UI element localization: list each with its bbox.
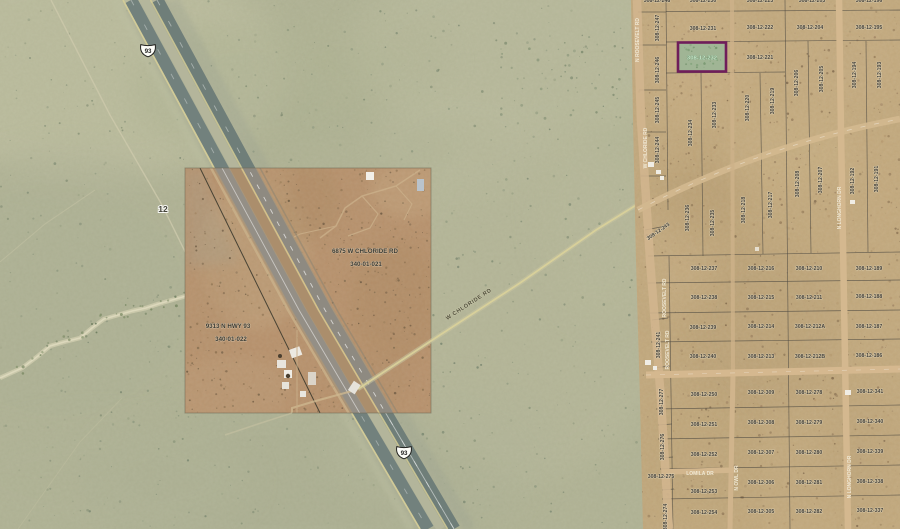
svg-text:308-12-276: 308-12-276 [660, 434, 666, 461]
svg-text:308-12-309: 308-12-309 [748, 390, 775, 396]
svg-text:ROOSEVELT RD: ROOSEVELT RD [665, 330, 671, 369]
svg-text:308-12-338: 308-12-338 [857, 479, 884, 485]
svg-text:308-12-253: 308-12-253 [691, 489, 718, 495]
svg-text:308-12-212B: 308-12-212B [795, 354, 826, 360]
svg-text:9313 N HWY 93: 9313 N HWY 93 [206, 323, 251, 330]
svg-text:308-12-223: 308-12-223 [747, 0, 774, 4]
svg-text:308-12-236: 308-12-236 [685, 205, 691, 232]
svg-text:308-12-189: 308-12-189 [856, 266, 883, 272]
svg-text:308-12-186: 308-12-186 [856, 353, 883, 359]
svg-text:308-12-212A: 308-12-212A [795, 324, 826, 330]
svg-text:308-12-210: 308-12-210 [796, 266, 823, 272]
svg-text:308-12-305: 308-12-305 [748, 509, 775, 515]
svg-text:308-12-237: 308-12-237 [691, 266, 718, 272]
svg-text:308-12-231: 308-12-231 [690, 26, 717, 32]
svg-text:308-12-341: 308-12-341 [857, 389, 884, 395]
svg-text:340-01-022: 340-01-022 [215, 336, 247, 343]
svg-text:308-12-238: 308-12-238 [691, 295, 718, 301]
svg-text:308-12-191: 308-12-191 [874, 166, 880, 193]
svg-text:LOMILA DR: LOMILA DR [686, 471, 714, 477]
svg-text:N LONGHORN DR: N LONGHORN DR [837, 186, 843, 229]
svg-text:ROOSEVELT RD: ROOSEVELT RD [662, 278, 668, 317]
svg-text:308-12-247: 308-12-247 [655, 15, 661, 42]
svg-text:308-12-250: 308-12-250 [691, 392, 718, 398]
svg-text:308-12-221: 308-12-221 [747, 55, 774, 61]
svg-text:308-12-281: 308-12-281 [796, 480, 823, 486]
svg-text:308-12-208: 308-12-208 [795, 171, 801, 198]
svg-text:308-12-277: 308-12-277 [659, 389, 665, 416]
svg-text:93: 93 [401, 450, 408, 457]
svg-text:308-12-215: 308-12-215 [748, 295, 775, 301]
svg-text:308-12-239: 308-12-239 [690, 325, 717, 331]
svg-text:308-12-252: 308-12-252 [691, 452, 718, 458]
svg-text:308-12-196: 308-12-196 [856, 0, 883, 4]
svg-text:308-12-220: 308-12-220 [745, 95, 751, 122]
svg-text:308-12-216: 308-12-216 [748, 266, 775, 272]
svg-text:308-12-275: 308-12-275 [648, 474, 675, 480]
svg-text:308-12-207: 308-12-207 [818, 167, 824, 194]
svg-text:308-12-211: 308-12-211 [796, 295, 822, 301]
svg-text:308-12-246: 308-12-246 [655, 57, 661, 84]
svg-text:308-12-194: 308-12-194 [852, 62, 858, 89]
svg-text:308-12-222: 308-12-222 [747, 25, 774, 31]
svg-text:308-12-251: 308-12-251 [691, 422, 718, 428]
svg-text:308-12-278: 308-12-278 [796, 390, 823, 396]
svg-text:308-12-240: 308-12-240 [690, 354, 717, 360]
svg-text:308-12-241: 308-12-241 [656, 332, 662, 359]
svg-text:308-12-193: 308-12-193 [877, 62, 883, 89]
svg-text:308-12-218: 308-12-218 [741, 197, 747, 224]
svg-text:308-12-280: 308-12-280 [796, 450, 823, 456]
svg-text:308-12-244: 308-12-244 [655, 137, 661, 164]
svg-text:308-12-307: 308-12-307 [748, 450, 775, 456]
svg-text:308-12-235: 308-12-235 [710, 210, 716, 237]
svg-text:308-12-340: 308-12-340 [857, 419, 884, 425]
svg-text:N LONGHORN DR: N LONGHORN DR [847, 455, 853, 498]
svg-text:308-12-248: 308-12-248 [644, 0, 671, 4]
svg-text:308-12-217: 308-12-217 [768, 192, 774, 219]
svg-text:W CHLORIDE RD: W CHLORIDE RD [643, 127, 649, 168]
svg-text:308-12-219: 308-12-219 [770, 88, 776, 115]
svg-text:308-12-213: 308-12-213 [748, 354, 775, 360]
svg-text:308-12-214: 308-12-214 [748, 324, 775, 330]
svg-text:308-12-282: 308-12-282 [796, 509, 823, 515]
svg-text:12: 12 [158, 204, 168, 214]
svg-text:308-12-232: 308-12-232 [687, 56, 718, 62]
svg-text:308-12-204: 308-12-204 [797, 25, 824, 31]
svg-text:93: 93 [145, 48, 152, 55]
svg-text:308-12-254: 308-12-254 [691, 510, 718, 516]
svg-text:308-12-206: 308-12-206 [794, 70, 800, 97]
svg-text:308-12-245: 308-12-245 [655, 97, 661, 124]
svg-text:308-12-279: 308-12-279 [796, 420, 823, 426]
svg-text:308-12-192: 308-12-192 [850, 168, 856, 195]
svg-text:308-12-339: 308-12-339 [857, 449, 884, 455]
svg-text:308-12-187: 308-12-187 [856, 324, 883, 330]
svg-text:308-12-234: 308-12-234 [688, 120, 694, 147]
svg-text:340-01-021: 340-01-021 [350, 261, 382, 268]
svg-text:308-12-230: 308-12-230 [690, 0, 717, 4]
svg-text:308-12-306: 308-12-306 [748, 480, 775, 486]
svg-text:308-12-188: 308-12-188 [856, 294, 883, 300]
svg-text:N OWL DR: N OWL DR [734, 465, 740, 491]
svg-text:308-12-308: 308-12-308 [748, 420, 775, 426]
svg-text:308-12-233: 308-12-233 [712, 102, 718, 129]
svg-text:308-12-195: 308-12-195 [856, 25, 883, 31]
svg-text:308-12-337: 308-12-337 [857, 508, 884, 514]
svg-text:308-12-205: 308-12-205 [819, 66, 825, 93]
svg-text:308-12-274: 308-12-274 [663, 504, 669, 529]
svg-text:308-12-203: 308-12-203 [799, 0, 826, 4]
svg-text:6875 W CHLORIDE RD: 6875 W CHLORIDE RD [332, 248, 399, 255]
svg-text:N ROOSEVELT RD: N ROOSEVELT RD [635, 18, 641, 62]
